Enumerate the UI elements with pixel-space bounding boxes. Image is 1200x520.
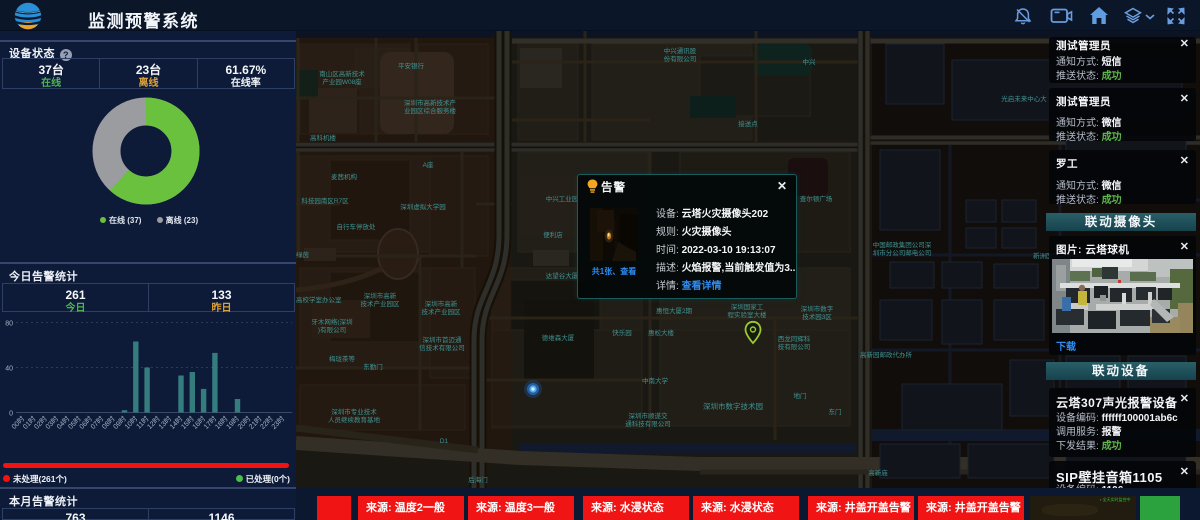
- svg-text:绿茵: 绿茵: [296, 250, 310, 259]
- svg-text:麦茜机构: 麦茜机构: [331, 172, 358, 181]
- svg-text:东门: 东门: [829, 407, 842, 416]
- svg-text:后海门: 后海门: [468, 475, 488, 484]
- svg-text:中南大学: 中南大学: [642, 376, 669, 385]
- svg-text:深圳市顺遂交通科技有限公司: 深圳市顺遂交通科技有限公司: [625, 411, 671, 428]
- svg-text:梅珑茶等: 梅珑茶等: [329, 354, 356, 363]
- svg-text:A座: A座: [423, 160, 434, 169]
- svg-text:惠松大楼: 惠松大楼: [648, 328, 675, 337]
- svg-text:高新庙: 高新庙: [868, 468, 888, 477]
- svg-text:科技园南区R7区: 科技园南区R7区: [301, 196, 349, 205]
- svg-text:0: 0: [9, 411, 13, 418]
- svg-text:便利店: 便利店: [543, 230, 563, 239]
- svg-text:深圳市首迈通信技术有限公司: 深圳市首迈通信技术有限公司: [419, 335, 465, 352]
- svg-text:深圳市高新技术产业园区: 深圳市高新技术产业园区: [361, 291, 401, 308]
- svg-text:深圳国家工程实验室大楼: 深圳国家工程实验室大楼: [728, 302, 768, 319]
- svg-text:惠恒大厦2期: 惠恒大厦2期: [656, 306, 693, 315]
- svg-text:深圳市高新技术产业园区: 深圳市高新技术产业园区: [422, 299, 462, 316]
- svg-text:高科机楼: 高科机楼: [310, 133, 337, 142]
- svg-text:高新园邮政代办所: 高新园邮政代办所: [860, 350, 913, 359]
- svg-text:深圳市专业技术人员继续教育基地: 深圳市专业技术人员继续教育基地: [328, 407, 381, 424]
- svg-text:40: 40: [5, 366, 13, 373]
- svg-text:快乐园: 快乐园: [612, 328, 632, 337]
- svg-text:西龙同辉科技有限公司: 西龙同辉科技有限公司: [778, 334, 811, 351]
- svg-text:中兴工业园: 中兴工业园: [546, 194, 579, 203]
- svg-text:南山区高新技术产业园W08座: 南山区高新技术产业园W08座: [319, 69, 365, 86]
- svg-text:地门: 地门: [794, 391, 807, 400]
- svg-text:中国邮政集团公司深圳市分公司邮电公司: 中国邮政集团公司深圳市分公司邮电公司: [873, 240, 932, 257]
- svg-text:接送点: 接送点: [738, 119, 758, 128]
- svg-text:达望谷大厦: 达望谷大厦: [546, 271, 579, 280]
- svg-text:东勤门: 东勤门: [363, 362, 383, 371]
- svg-text:查尔顿广场: 查尔顿广场: [800, 194, 833, 203]
- svg-text:中兴通讯股份有限公司: 中兴通讯股份有限公司: [664, 46, 697, 63]
- svg-text:高校学室办公室: 高校学室办公室: [296, 295, 342, 304]
- svg-text:深圳市数字技术园: 深圳市数字技术园: [703, 401, 763, 411]
- svg-text:中兴: 中兴: [803, 57, 817, 66]
- svg-text:德维森大厦: 德维森大厦: [542, 333, 575, 342]
- svg-text:深圳市数字技术园3区: 深圳市数字技术园3区: [801, 304, 834, 321]
- svg-text:平安银行: 平安银行: [398, 61, 425, 70]
- svg-text:自行车停放处: 自行车停放处: [337, 222, 377, 231]
- svg-text:深圳虚拟大学园: 深圳虚拟大学园: [400, 202, 446, 211]
- svg-text:光启未来中心大: 光启未来中心大: [1001, 94, 1047, 103]
- svg-text:80: 80: [5, 321, 13, 328]
- svg-text:深圳市高新技术产业园区综合服务楼: 深圳市高新技术产业园区综合服务楼: [404, 98, 457, 115]
- svg-text:D1: D1: [440, 438, 449, 445]
